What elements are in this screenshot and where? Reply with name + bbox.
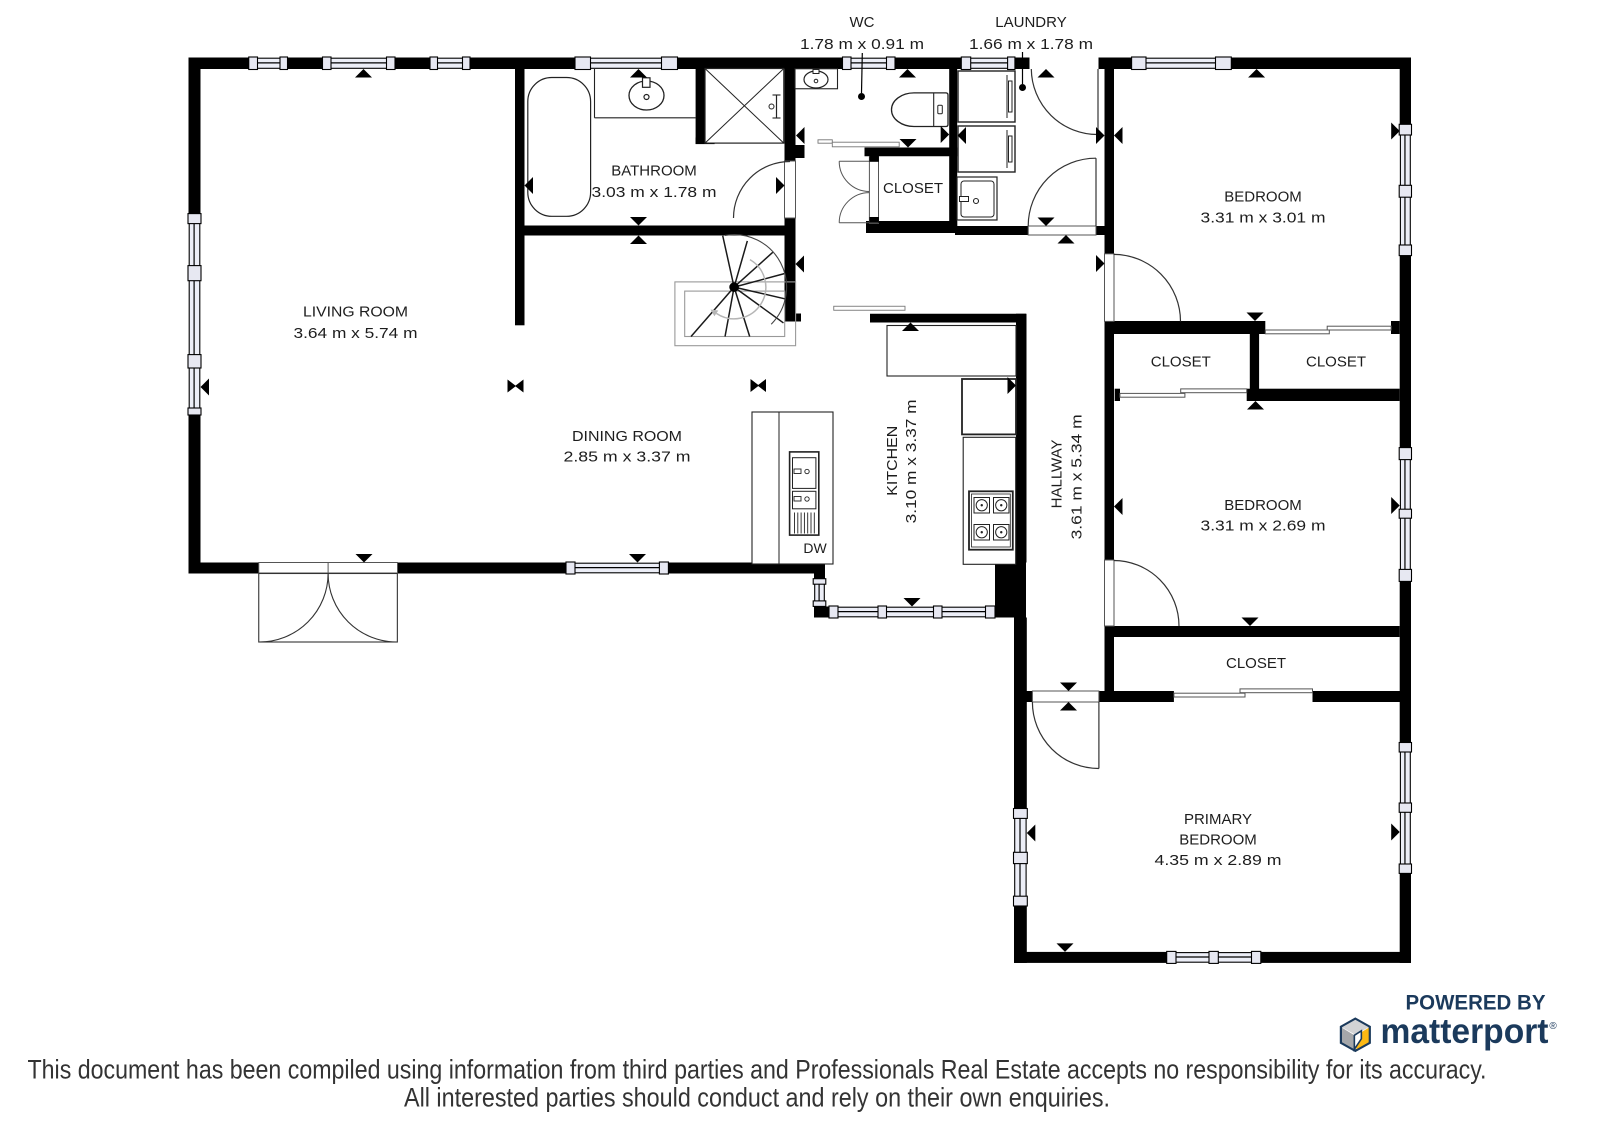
svg-text:HALLWAY: HALLWAY <box>1048 439 1065 508</box>
svg-text:matterport: matterport <box>1381 1012 1549 1051</box>
svg-text:3.31 m x 2.69 m: 3.31 m x 2.69 m <box>1201 518 1326 535</box>
svg-text:CLOSET: CLOSET <box>1151 354 1211 371</box>
svg-text:1.66 m x 1.78 m: 1.66 m x 1.78 m <box>969 36 1093 53</box>
svg-text:CLOSET: CLOSET <box>1306 354 1366 371</box>
svg-text:DINING ROOM: DINING ROOM <box>572 428 682 445</box>
svg-text:LAUNDRY: LAUNDRY <box>995 14 1066 31</box>
svg-text:3.03 m x 1.78 m: 3.03 m x 1.78 m <box>592 184 717 201</box>
svg-text:3.10 m x 3.37 m: 3.10 m x 3.37 m <box>903 399 920 523</box>
svg-text:2.85 m x 3.37 m: 2.85 m x 3.37 m <box>564 449 691 466</box>
svg-text:All interested parties should: All interested parties should conduct an… <box>404 1083 1110 1113</box>
svg-text:CLOSET: CLOSET <box>1226 655 1286 672</box>
svg-text:BEDROOM: BEDROOM <box>1224 189 1302 206</box>
svg-text:CLOSET: CLOSET <box>883 180 943 197</box>
svg-text:BEDROOM: BEDROOM <box>1179 832 1257 849</box>
svg-text:®: ® <box>1549 1021 1557 1032</box>
svg-text:BEDROOM: BEDROOM <box>1224 497 1302 514</box>
svg-text:PRIMARY: PRIMARY <box>1184 811 1252 828</box>
svg-text:DW: DW <box>803 540 827 556</box>
svg-text:3.61 m x 5.34 m: 3.61 m x 5.34 m <box>1069 414 1086 539</box>
svg-text:LIVING ROOM: LIVING ROOM <box>303 304 408 321</box>
svg-text:KITCHEN: KITCHEN <box>884 426 901 496</box>
svg-text:BATHROOM: BATHROOM <box>611 163 697 180</box>
svg-text:This document has been compile: This document has been compiled using in… <box>28 1055 1487 1085</box>
svg-text:4.35 m x 2.89 m: 4.35 m x 2.89 m <box>1155 852 1282 869</box>
svg-text:3.31 m x 3.01 m: 3.31 m x 3.01 m <box>1201 210 1326 227</box>
svg-text:WC: WC <box>850 14 875 31</box>
svg-text:3.64 m x 5.74 m: 3.64 m x 5.74 m <box>294 325 418 342</box>
svg-text:1.78 m x 0.91 m: 1.78 m x 0.91 m <box>800 36 924 53</box>
